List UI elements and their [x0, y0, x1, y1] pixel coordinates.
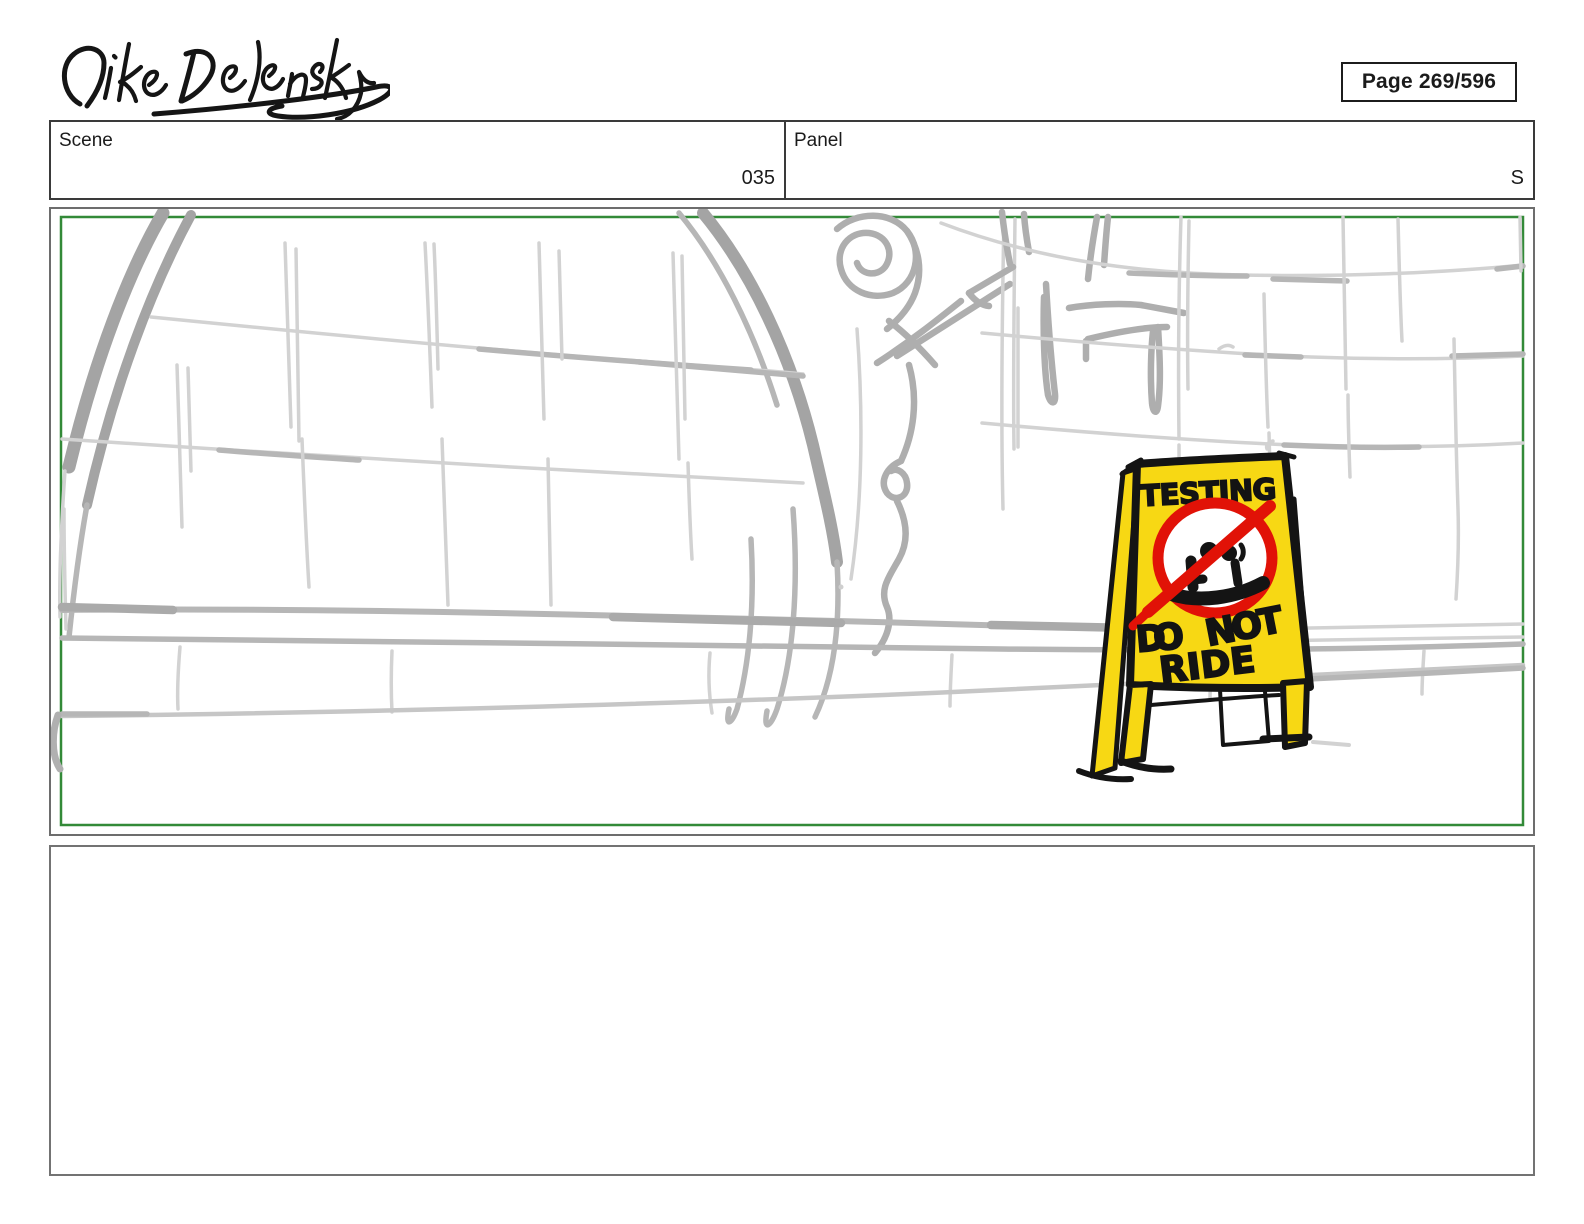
page-number-badge: Page 269/596 [1341, 62, 1517, 102]
artist-signature [54, 30, 390, 122]
panel-label: Panel [794, 130, 843, 152]
page-number-label: Page 269/596 [1362, 70, 1496, 94]
storyboard-page: Page 269/596 Scene 035 Panel S [0, 0, 1584, 1224]
storyboard-frame: TESTING [49, 207, 1535, 836]
storyboard-sketch: TESTING [51, 209, 1533, 834]
scene-panel-row: Scene 035 Panel S [49, 120, 1535, 200]
sign-rear-crossbar [1151, 695, 1279, 705]
sign-left-leg [1121, 684, 1151, 763]
panel-cell: Panel S [786, 122, 1533, 198]
signature-strokes [64, 40, 390, 119]
scene-value: 035 [742, 167, 775, 190]
caution-sign: TESTING [1079, 453, 1349, 779]
notes-box [49, 845, 1535, 1176]
scene-label: Scene [59, 130, 113, 152]
sign-shadow [1313, 742, 1349, 745]
scene-cell: Scene 035 [51, 122, 786, 198]
panel-value: S [1511, 167, 1524, 190]
